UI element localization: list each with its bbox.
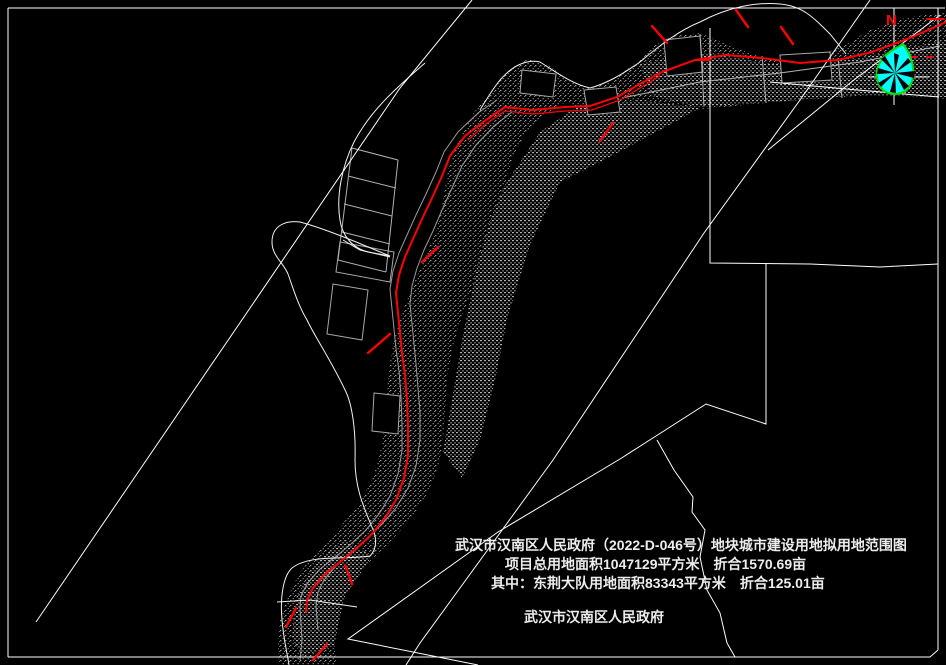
field-patch <box>780 52 832 83</box>
map-title: 武汉市汉南区人民政府（2022-D-046号）地块城市建设用地拟用地范围图 <box>455 535 907 555</box>
field-patch <box>327 284 368 340</box>
field-patch <box>372 393 400 434</box>
field-patch <box>520 70 556 97</box>
issuer-text: 武汉市汉南区人民政府 <box>524 607 664 627</box>
total-area-text: 项目总用地面积1047129平方米 折合1570.69亩 <box>505 554 806 574</box>
north-label: N <box>886 12 897 29</box>
land-use-map-canvas: N 武汉市汉南区人民政府（2022-D-046号）地块城市建设用地拟用地范围图 … <box>0 0 946 665</box>
subarea-text: 其中：东荆大队用地面积83343平方米 折合125.01亩 <box>491 573 825 593</box>
